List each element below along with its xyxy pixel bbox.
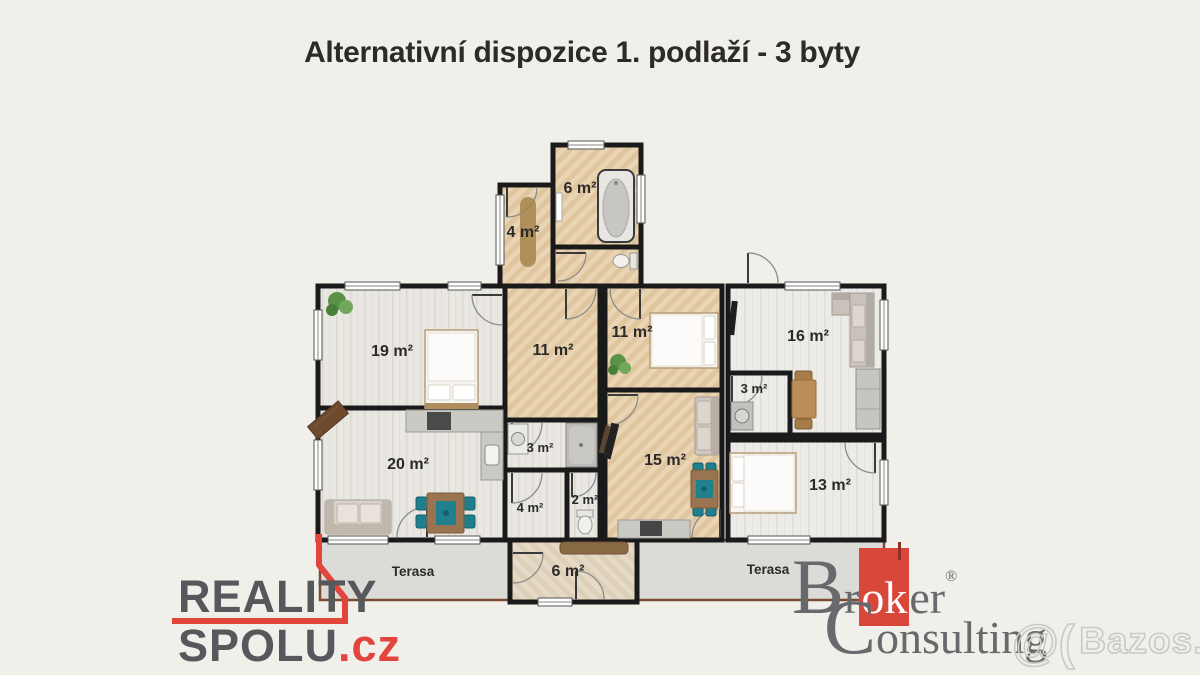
sofa-20-icon: [325, 500, 391, 534]
wardrobe-icon: [856, 369, 880, 429]
washer-left-icon: [508, 424, 528, 454]
shelf-icon: [556, 193, 562, 221]
flyer-root: Alternativní dispozice 1. podlaží - 3 by…: [0, 0, 1200, 675]
registered-mark-icon: ®: [945, 568, 957, 585]
room-label-bedroom-13: 13 m²: [809, 477, 851, 494]
kitchen-15-icon: [618, 520, 690, 538]
room-label-bath-top: 6 m²: [564, 180, 597, 197]
room-label-hall-top: 4 m²: [507, 224, 540, 241]
bed-11-icon: [650, 313, 718, 368]
sofa-15-icon: [695, 397, 719, 455]
toilet-bottom-icon: [577, 510, 593, 534]
room-label-bedroom-19: 19 m²: [371, 343, 413, 360]
page-title: Alternativní dispozice 1. podlaží - 3 by…: [0, 36, 1164, 70]
bed-13-icon: [730, 453, 796, 513]
reality-spolu-logo: REALITY SPOLU.cz: [178, 574, 401, 668]
reality-spolu-tld: .cz: [338, 620, 401, 671]
washer-right-icon: [731, 402, 753, 430]
bed-19-icon: [425, 330, 478, 409]
room-label-hall-4: 4 m²: [517, 500, 544, 515]
reality-spolu-line2: SPOLU.cz: [178, 623, 401, 668]
bathtub-icon: [598, 170, 634, 242]
room-label-living-20: 20 m²: [387, 456, 429, 473]
table-16-icon: [792, 371, 816, 429]
reality-spolu-word: SPOLU: [178, 620, 338, 671]
room-label-hall-center: 11 m²: [533, 342, 574, 359]
bazos-at-icon: @(: [1012, 617, 1075, 670]
room-label-living-15: 15 m²: [644, 452, 686, 469]
room-label-bath-3: 3 m²: [527, 440, 554, 455]
consulting-initial: C: [824, 583, 876, 670]
bazos-site-text: Bazos.cz: [1079, 620, 1200, 661]
bazos-watermark: @( Bazos.cz: [1012, 616, 1200, 671]
floor-plan: 6 m² 4 m² 19 m² 11 m² 11 m² 16 m² 3 m² 2…: [280, 125, 900, 610]
shower-icon: [566, 423, 597, 467]
toilet-top-icon: [613, 253, 637, 269]
room-label-wc-2: 2 m²: [572, 492, 599, 507]
broker-pole-mark: [898, 542, 901, 560]
terrace-right-label: Terasa: [747, 562, 790, 577]
room-label-living-16: 16 m²: [787, 328, 829, 345]
room-label-storage-3: 3 m²: [741, 381, 768, 396]
reality-spolu-line1: REALITY: [178, 574, 401, 619]
dining-table-15-icon: [691, 463, 718, 516]
room-label-bedroom-11: 11 m²: [612, 324, 653, 341]
room-label-entry-6: 6 m²: [552, 563, 585, 580]
bench-icon: [560, 542, 628, 554]
